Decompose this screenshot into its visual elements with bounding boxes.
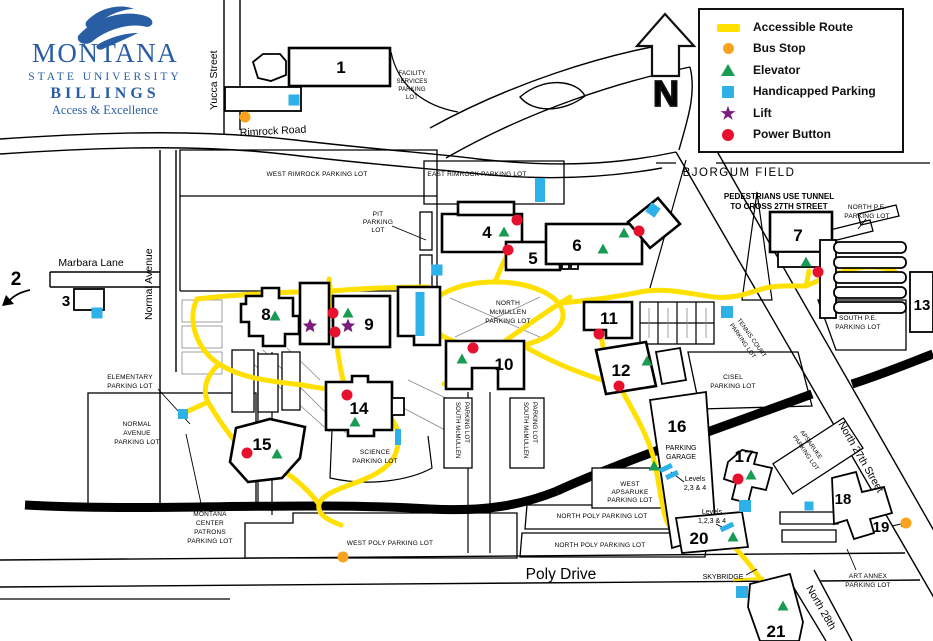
north-label: N — [653, 73, 679, 114]
svg-text:PARKING LOT: PARKING LOT — [845, 582, 890, 589]
power-button-icon — [716, 127, 740, 141]
svg-text:LOT: LOT — [371, 227, 384, 234]
lot-label-south-pe: SOUTH P.E. — [839, 315, 877, 322]
lot-label-west-poly: WEST POLY PARKING LOT — [347, 540, 433, 547]
building-label-7: 7 — [793, 226, 802, 245]
power-button-icon — [512, 215, 523, 226]
building-label-9: 9 — [364, 315, 373, 334]
legend-label: Handicapped Parking — [753, 84, 876, 98]
elevator-icon — [716, 63, 740, 77]
handicapped-parking-icon — [432, 265, 443, 276]
street-label-yucca: Yucca Street — [208, 50, 220, 110]
building-6-shape — [546, 224, 642, 264]
tunnel-note-line1: PEDESTRIANS USE TUNNEL — [724, 192, 834, 201]
svg-text:PARKING LOT: PARKING LOT — [187, 538, 232, 545]
logo-billings: BILLINGS — [50, 85, 159, 102]
lot-label-east-rimrock: EAST RIMROCK PARKING LOT — [427, 171, 526, 178]
power-button-icon — [813, 267, 824, 278]
logo-tagline: Access & Excellence — [52, 103, 159, 117]
svg-text:PARKING LOT: PARKING LOT — [114, 439, 159, 446]
building-3-shape — [74, 289, 104, 310]
power-button-icon — [330, 327, 341, 338]
handicapped-parking-icon — [289, 95, 300, 106]
svg-text:LOT: LOT — [406, 95, 418, 101]
building-label-6: 6 — [572, 236, 581, 255]
svg-text:PARKING LOT: PARKING LOT — [352, 458, 397, 465]
power-button-icon — [614, 381, 625, 392]
lot-label-north-poly-1: NORTH POLY PARKING LOT — [557, 513, 648, 520]
power-button-icon — [242, 448, 253, 459]
power-button-icon — [503, 245, 514, 256]
svg-text:PARKING: PARKING — [398, 87, 425, 93]
lot-label-facility: FACILITY — [399, 71, 426, 77]
lot-label-montana-center: MONTANA — [193, 511, 227, 518]
svg-text:PARKING LOT: PARKING LOT — [531, 402, 537, 443]
handicapped-parking-icon — [92, 308, 103, 319]
handicapped-parking-icon — [739, 500, 751, 512]
map-legend: Accessible Route Bus Stop Elevator Handi… — [698, 8, 904, 153]
legend-item-handicapped-parking: Handicapped Parking — [716, 84, 902, 98]
street-label-normal: Normal Avenue — [143, 248, 155, 320]
lot-label-west-rimrock: WEST RIMROCK PARKING LOT — [267, 171, 368, 178]
lot-label-north-poly-2: NORTH POLY PARKING LOT — [555, 542, 646, 549]
tennis-courts — [640, 302, 714, 344]
lot-label-pit: PIT — [373, 211, 384, 218]
building-label-12: 12 — [612, 361, 631, 380]
logo-montana: MONTANA — [32, 38, 178, 68]
building-label-8: 8 — [261, 305, 270, 324]
bus-stop-icon — [716, 41, 740, 55]
legend-item-power-button: Power Button — [716, 127, 902, 141]
power-button-icon — [342, 390, 353, 401]
svg-text:PARKING LOT: PARKING LOT — [835, 324, 880, 331]
legend-item-lift: Lift — [716, 105, 902, 119]
building-label-3: 3 — [62, 293, 70, 310]
handicapped-parking-icon — [535, 178, 545, 202]
legend-label: Accessible Route — [753, 20, 853, 34]
tunnel-note-line2: TO CROSS 27TH STREET — [730, 202, 827, 211]
levels-1234-label2: 1,2,3 & 4 — [698, 518, 726, 525]
legend-label: Bus Stop — [753, 41, 806, 55]
svg-text:PARKING: PARKING — [363, 219, 393, 226]
lot-label-west-apsaruke: WEST — [620, 481, 640, 488]
lot-label-north-mcmullen: NORTH — [496, 300, 520, 307]
building-label-21: 21 — [767, 622, 786, 641]
building-label-13: 13 — [914, 297, 931, 314]
legend-label: Elevator — [753, 63, 800, 77]
handicapped-parking-icon — [178, 409, 188, 419]
svg-text:AVENUE: AVENUE — [123, 430, 151, 437]
svg-text:PATRONS: PATRONS — [194, 529, 226, 536]
bus-stop-icon — [338, 552, 349, 563]
bjorgum-field-label: BJORGUM FIELD — [683, 167, 796, 179]
campus-map: MONTANA STATE UNIVERSITY BILLINGS Access… — [0, 0, 933, 641]
svg-text:SOUTH McMULLEN: SOUTH McMULLEN — [522, 402, 528, 458]
building-label-14: 14 — [350, 399, 369, 418]
lot-label-normal-avenue: NORMAL — [122, 421, 151, 428]
svg-text:McMULLEN: McMULLEN — [490, 309, 527, 316]
svg-text:APSARUKE: APSARUKE — [611, 489, 648, 496]
bus-stop-icon — [240, 112, 251, 123]
handicapped-parking-icon — [416, 292, 425, 336]
lot-label-science: SCIENCE — [360, 449, 391, 456]
parking-garage-label2: GARAGE — [666, 454, 696, 461]
street-label-marbara: Marbara Lane — [58, 257, 124, 269]
bus-stop-icon — [901, 518, 912, 529]
svg-text:PARKING LOT: PARKING LOT — [710, 383, 755, 390]
building-label-20: 20 — [690, 529, 709, 548]
lot-label-art-annex: ART ANNEX — [849, 573, 888, 580]
legend-item-bus-stop: Bus Stop — [716, 41, 902, 55]
logo-state-university: STATE UNIVERSITY — [28, 71, 181, 83]
legend-label: Power Button — [753, 127, 831, 141]
skybridge-label: SKYBRIDGE — [703, 574, 744, 581]
levels-234-label: Levels — [685, 476, 706, 483]
building-label-19: 19 — [873, 519, 890, 536]
building-label-11: 11 — [600, 309, 618, 328]
lot-label-north-pe: NORTH P.E. — [848, 204, 886, 211]
street-label-poly: Poly Drive — [526, 566, 597, 583]
handicapped-parking-icon — [736, 586, 748, 598]
building-label-2: 2 — [11, 269, 22, 290]
svg-text:PARKING LOT: PARKING LOT — [463, 402, 469, 443]
parking-garage-label: PARKING — [666, 445, 697, 452]
levels-1234-label: Levels — [702, 509, 723, 516]
legend-item-elevator: Elevator — [716, 63, 902, 77]
building-9-shape — [333, 296, 390, 347]
svg-text:SERVICES: SERVICES — [396, 79, 427, 85]
lot-label-elementary: ELEMENTARY — [107, 374, 153, 381]
svg-text:SOUTH McMULLEN: SOUTH McMULLEN — [454, 402, 460, 458]
lift-icon — [716, 105, 740, 119]
building-label-17: 17 — [735, 447, 754, 466]
building-label-1: 1 — [336, 58, 345, 77]
power-button-icon — [594, 329, 605, 340]
legend-label: Lift — [753, 106, 772, 120]
building-label-15: 15 — [253, 435, 272, 454]
power-button-icon — [328, 308, 339, 319]
handicapped-parking-icon — [716, 84, 740, 98]
legend-item-accessible-route: Accessible Route — [716, 20, 902, 34]
lot-label-cisel: CISEL — [723, 374, 743, 381]
handicapped-parking-icon — [395, 429, 401, 445]
building-label-5: 5 — [528, 249, 537, 268]
svg-text:PARKING LOT: PARKING LOT — [607, 497, 652, 504]
handicapped-parking-icon — [805, 502, 814, 511]
building-label-10: 10 — [495, 355, 514, 374]
building-label-18: 18 — [835, 491, 852, 508]
svg-text:PARKING LOT: PARKING LOT — [485, 318, 530, 325]
svg-text:CENTER: CENTER — [196, 520, 224, 527]
power-button-icon — [468, 343, 479, 354]
svg-text:PARKING LOT: PARKING LOT — [107, 383, 152, 390]
building-label-16: 16 — [668, 417, 687, 436]
power-button-icon — [733, 474, 744, 485]
handicapped-parking-icon — [721, 306, 733, 318]
levels-234-label2: 2,3 & 4 — [684, 485, 706, 492]
building-label-4: 4 — [482, 223, 492, 242]
svg-text:PARKING LOT: PARKING LOT — [844, 213, 889, 220]
power-button-icon — [634, 226, 645, 237]
accessible-route-icon — [716, 20, 740, 34]
